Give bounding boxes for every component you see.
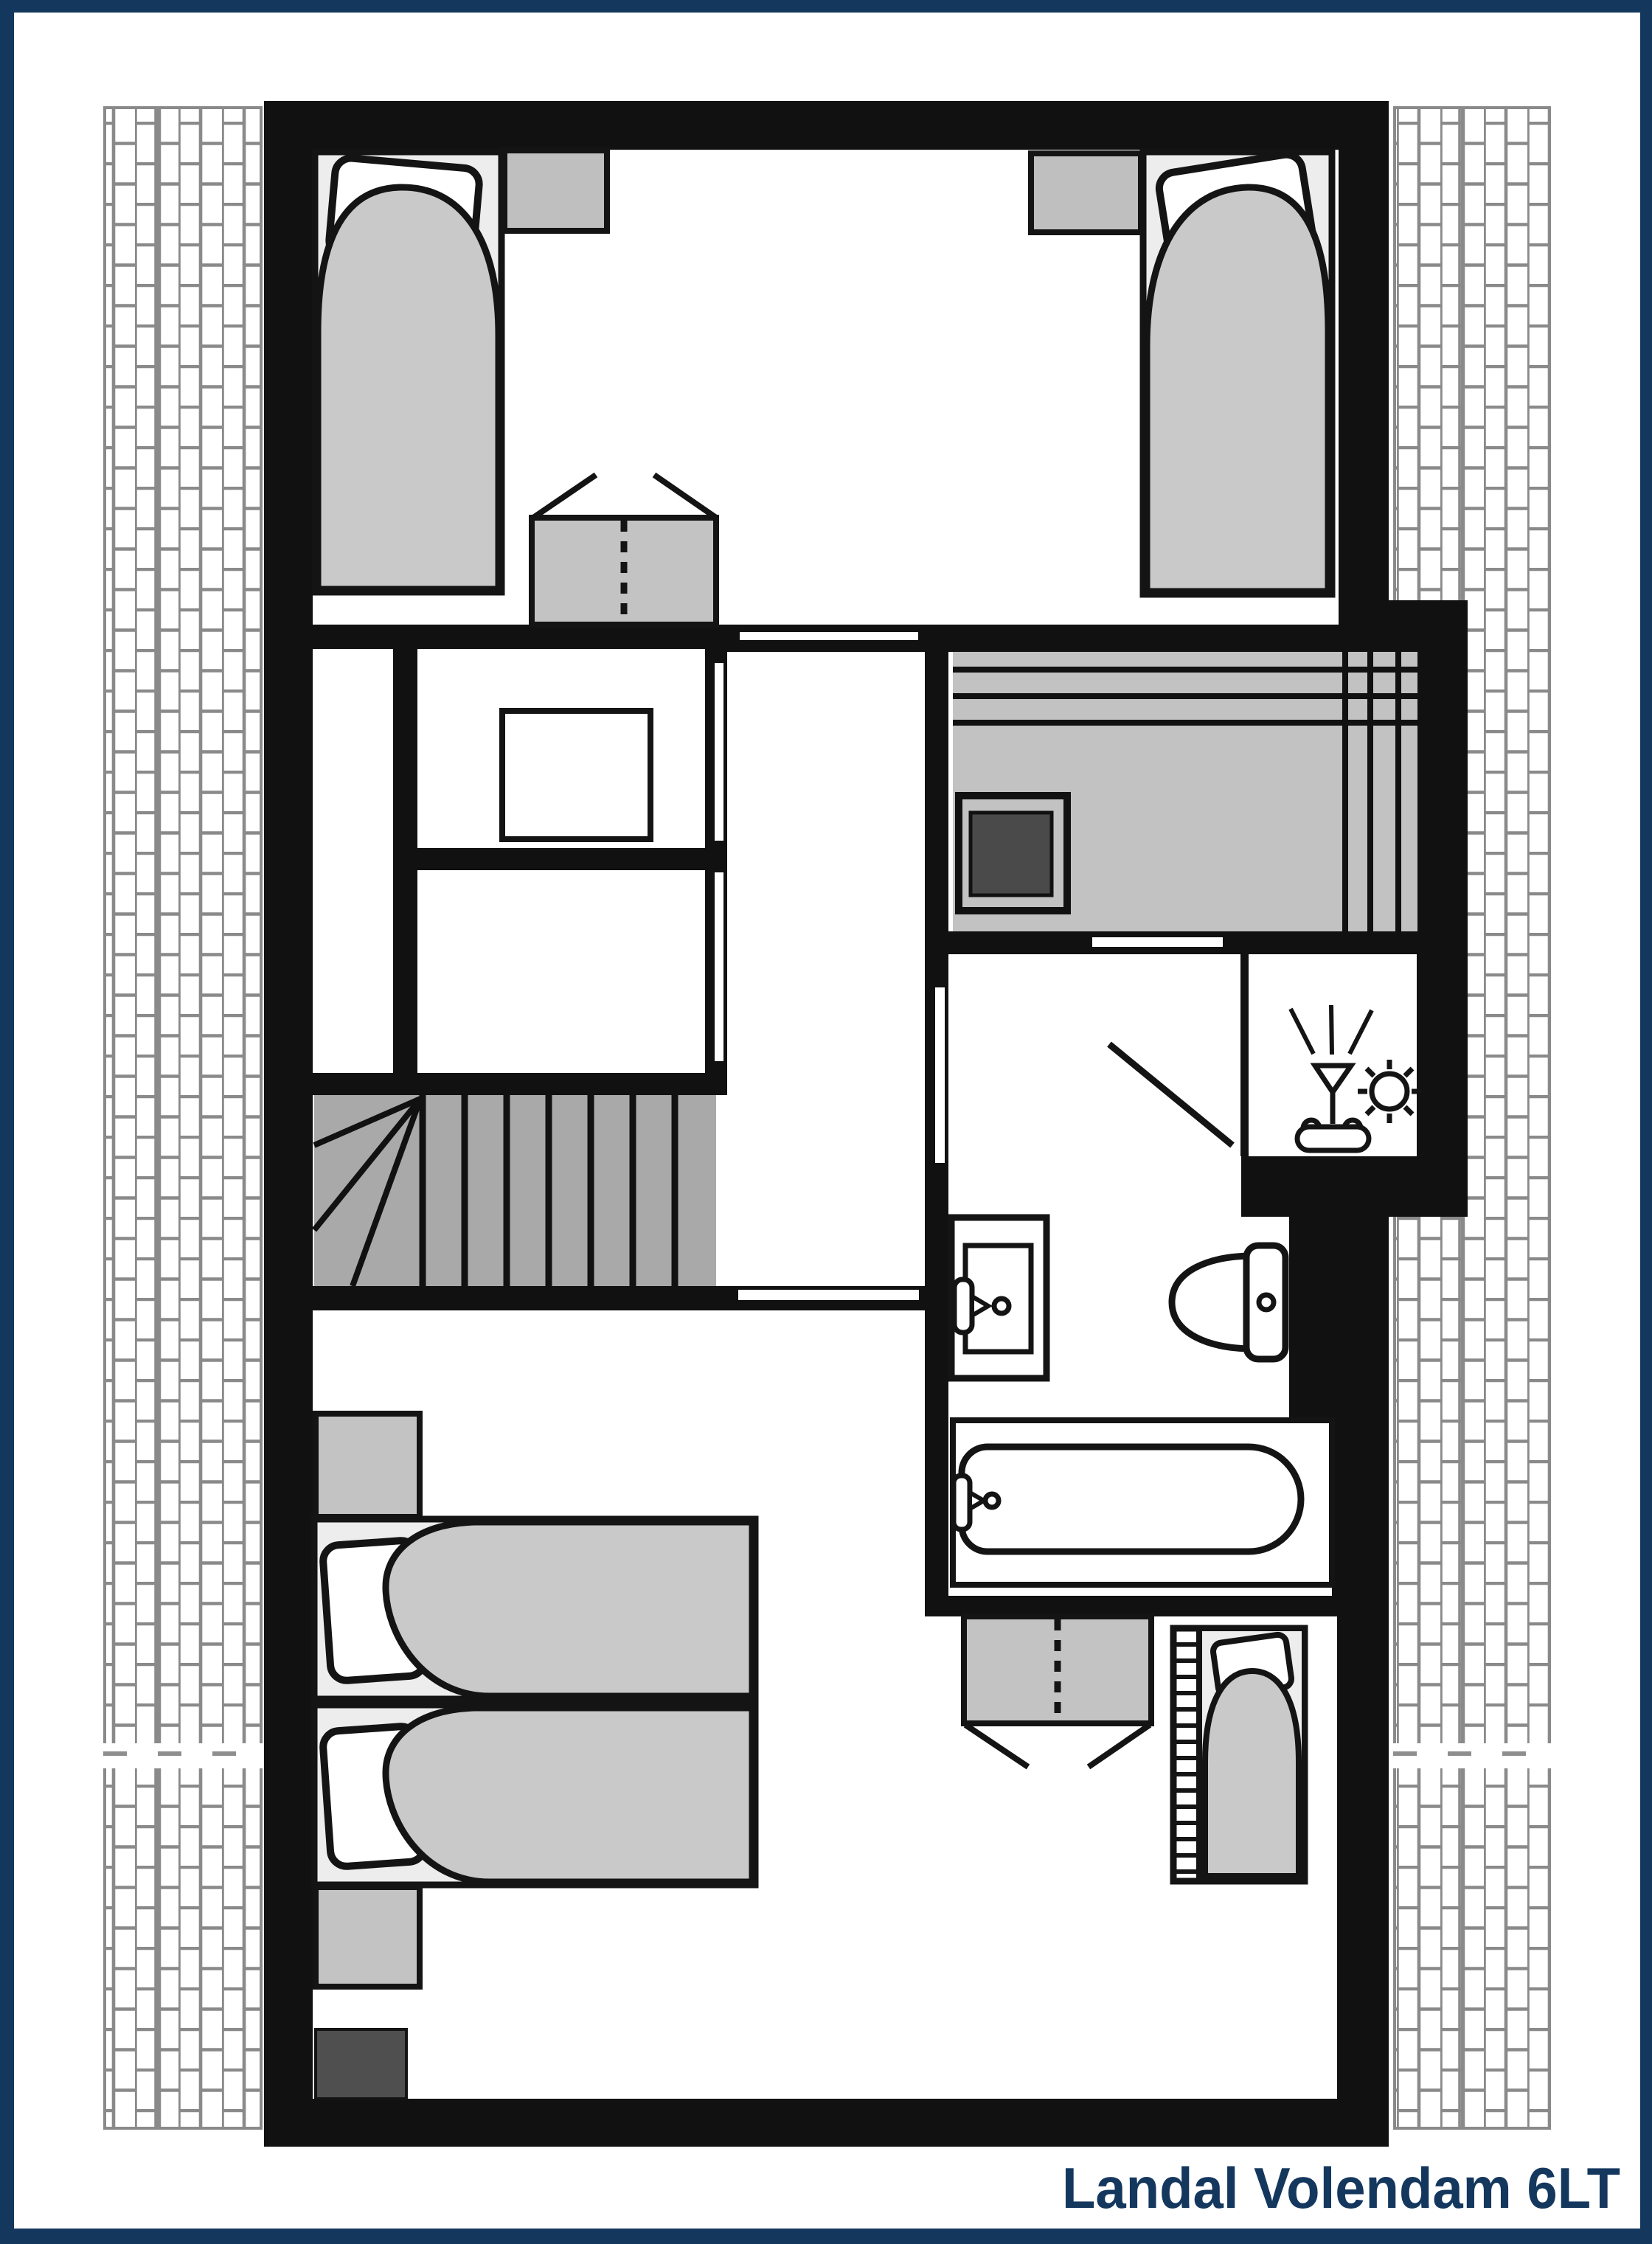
svg-text:Landal Volendam 6LT: Landal Volendam 6LT bbox=[1062, 2156, 1620, 2220]
